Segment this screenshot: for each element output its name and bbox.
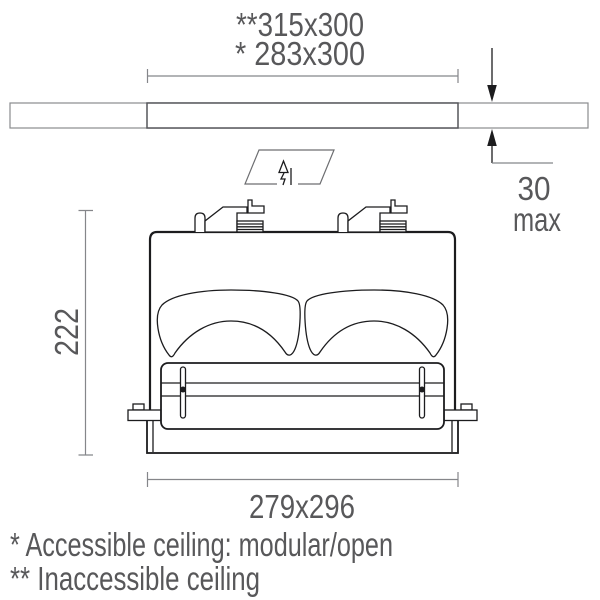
screw-right (419, 387, 425, 393)
clip-post (338, 213, 348, 232)
clip-latch (248, 200, 264, 213)
insertion-arrow-zigzag (281, 173, 285, 185)
flange-left-tab (133, 404, 144, 410)
clip-latch (391, 200, 407, 213)
footnote-inaccessible: ** Inaccessible ceiling (10, 560, 260, 597)
ceiling-cutout-segment (147, 103, 458, 128)
ceiling-thickness-dimension: 30 max (487, 48, 561, 238)
footprint-dimension: 279x296 (148, 472, 459, 525)
thickness-qualifier-label: max (513, 201, 561, 238)
footprint-value-label: 279x296 (249, 488, 355, 525)
height-value-label: 222 (48, 308, 85, 356)
insertion-arrow-icon (245, 150, 334, 185)
flange-left-plate (128, 410, 161, 421)
cutout-accessible-label: * 283x300 (235, 35, 365, 72)
ceiling-opening-parallelogram (245, 150, 334, 184)
ceiling-section (10, 103, 588, 128)
cutout-dimension: **315x300 * 283x300 (148, 6, 459, 83)
technical-diagram-svg: **315x300 * 283x300 30 max (0, 0, 600, 600)
dimensional-drawing: **315x300 * 283x300 30 max (0, 0, 600, 600)
flange-right-tab (461, 404, 472, 410)
mounting-clip-left (195, 200, 264, 232)
screw-left (180, 387, 186, 393)
clip-post (195, 213, 205, 232)
insertion-arrow-head (279, 161, 288, 173)
footprint-dimension-line (148, 472, 459, 487)
footnote-accessible: * Accessible ceiling: modular/open (10, 526, 393, 563)
gear-tray (161, 363, 444, 429)
height-dimension: 222 (48, 211, 93, 456)
flange-right-plate (444, 410, 477, 421)
fixture-drawing (128, 200, 477, 453)
thickness-lower-arrowhead (487, 129, 497, 146)
footnotes: * Accessible ceiling: modular/open ** In… (10, 526, 393, 597)
thickness-upper-arrowhead (487, 85, 497, 102)
mounting-clip-right (338, 200, 407, 232)
